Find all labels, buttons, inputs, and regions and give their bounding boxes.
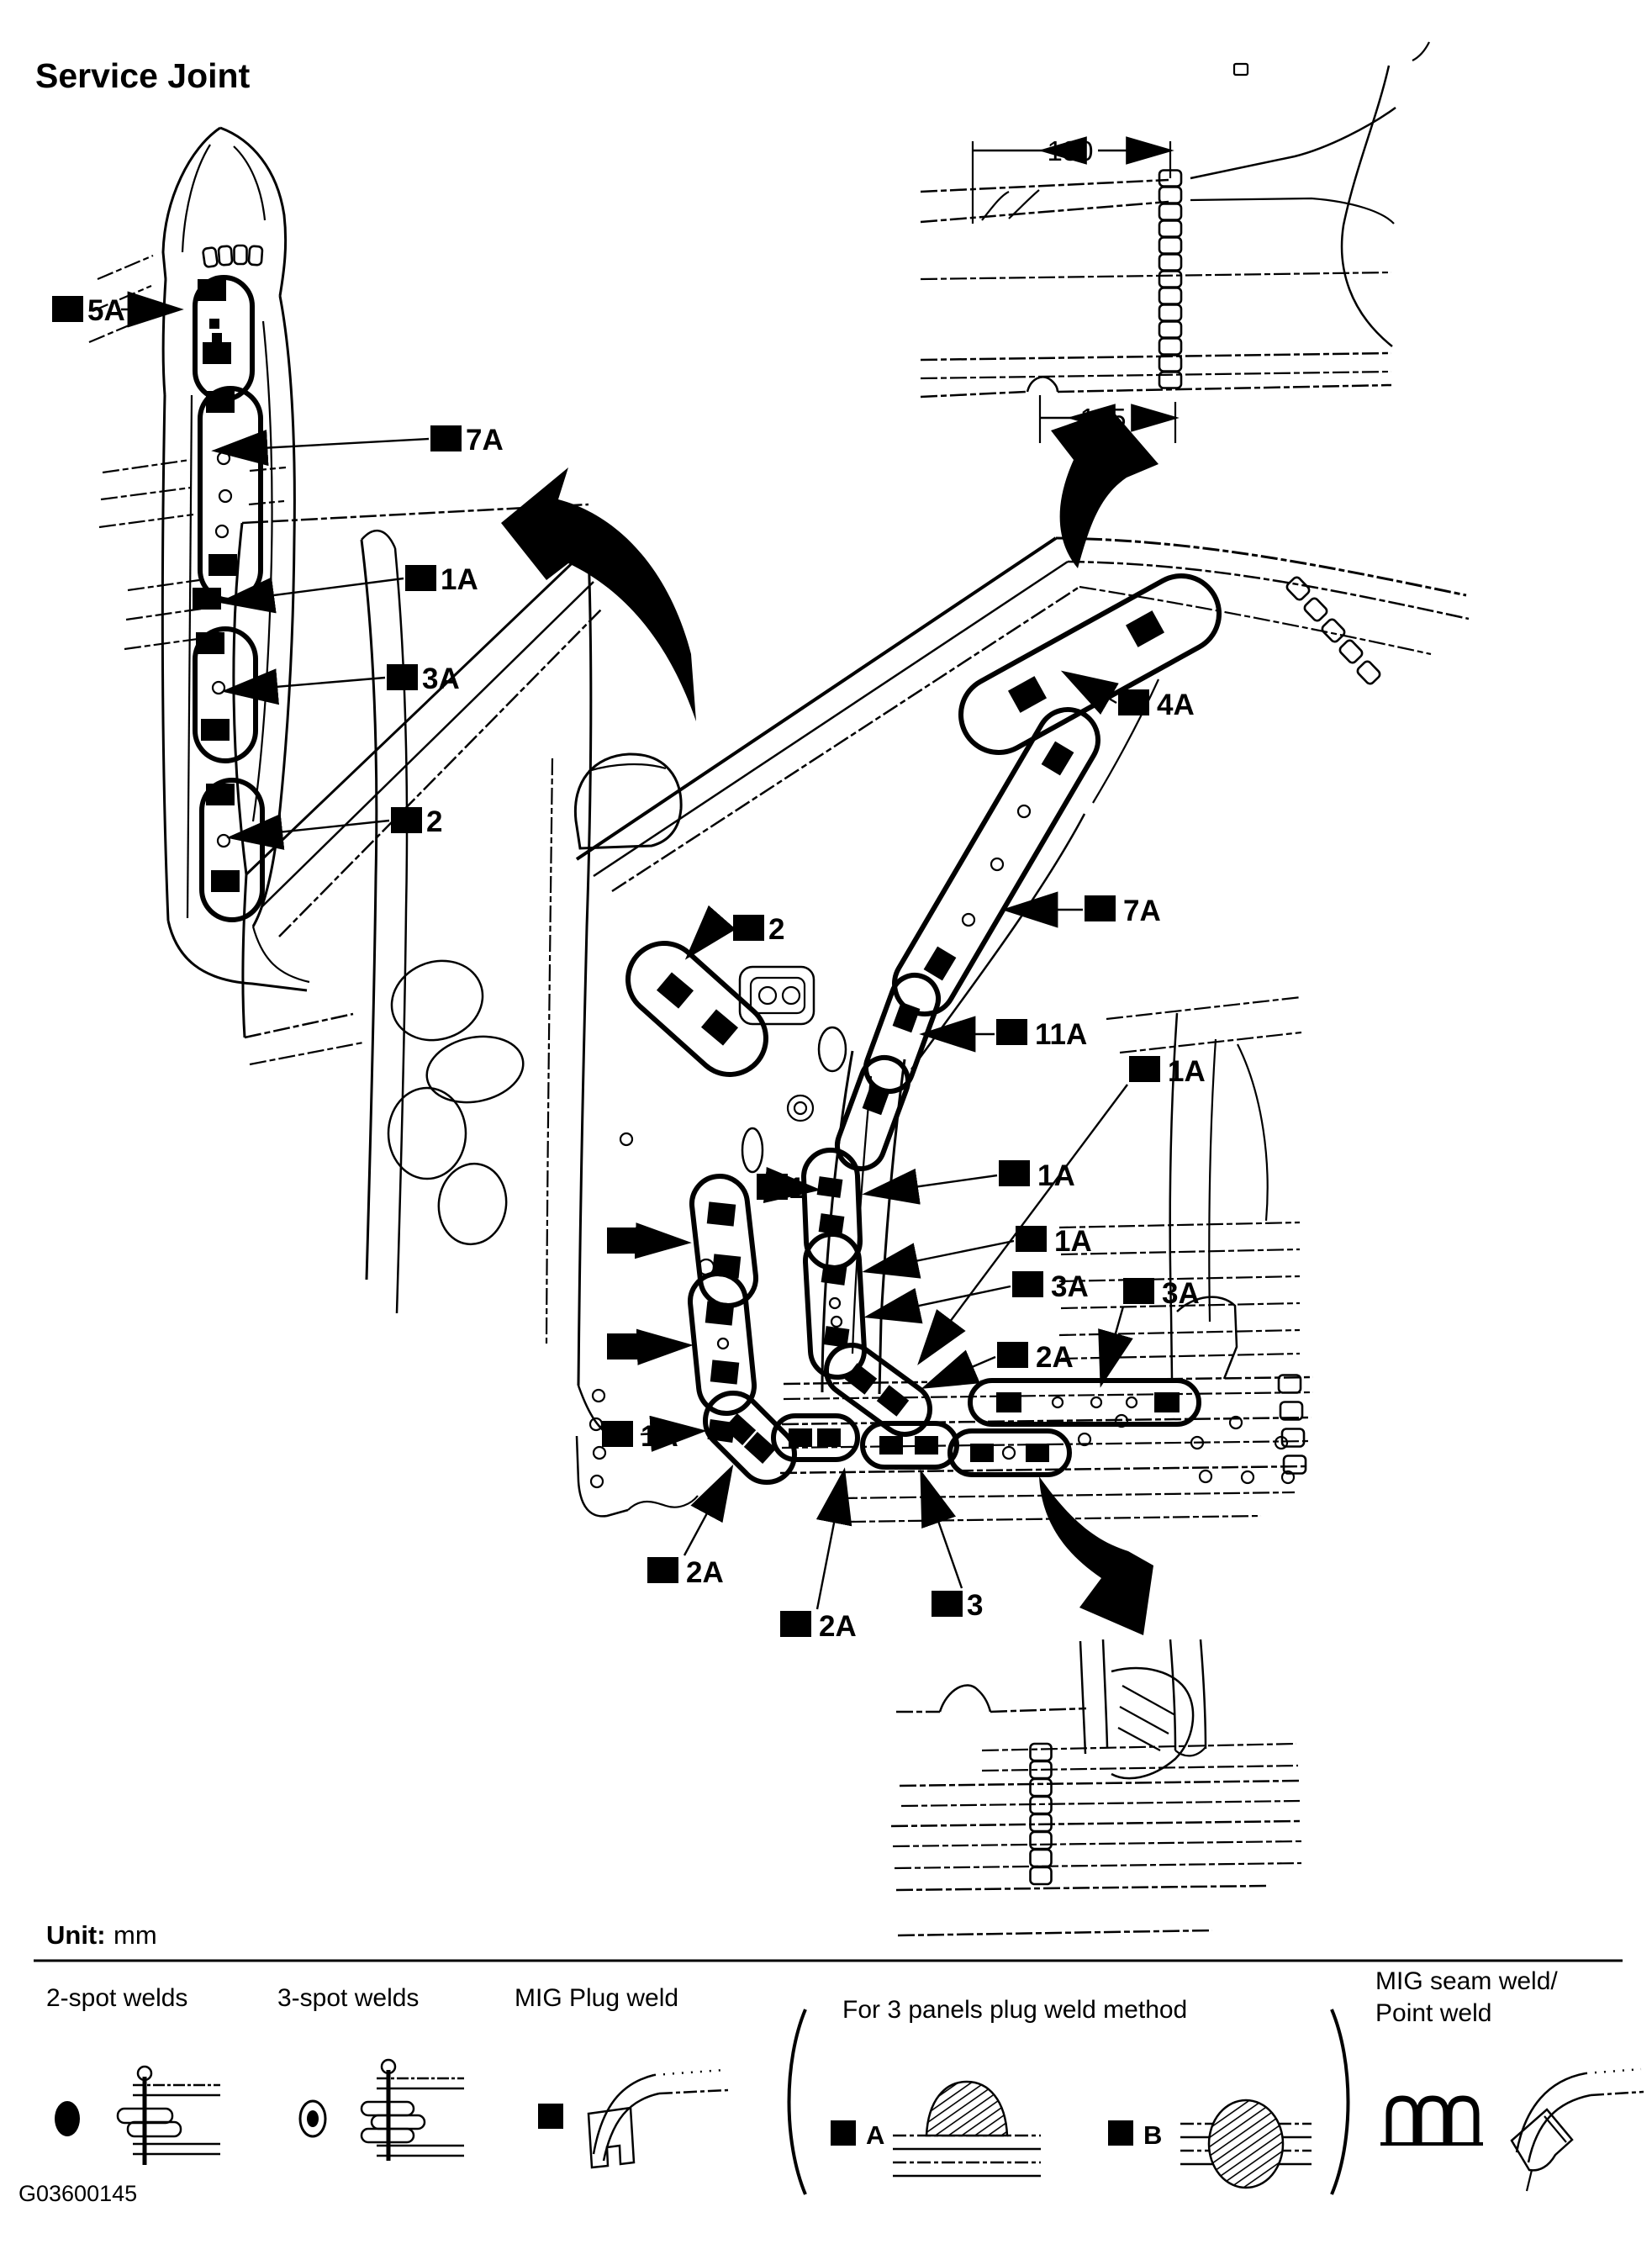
- weld-spot: [712, 1254, 742, 1278]
- callout-m-2-b: 2: [607, 1226, 688, 1259]
- weld-spot: [924, 947, 957, 981]
- callout-ld-5a: 5A: [52, 294, 180, 327]
- callout-label: 5A: [87, 294, 125, 327]
- callout-leader: [920, 1085, 1127, 1362]
- callout-m-3: 3: [921, 1473, 983, 1622]
- callout-m-2-c: 2: [607, 1332, 689, 1365]
- weld-spot: [1154, 1392, 1180, 1412]
- callout-m-1a-a: 1A: [866, 1159, 1075, 1194]
- weld-spot: [707, 1201, 736, 1226]
- callout-square-icon: [1016, 1226, 1047, 1252]
- mig-seam-weld-icon: [1380, 2099, 1483, 2144]
- legend: Unit: mm 2-spot welds 3-spot welds MIG P…: [34, 1920, 1644, 2194]
- weld-group-outline: [816, 1335, 940, 1444]
- callout-m-11a: 11A: [923, 1018, 1087, 1051]
- callout-square-icon: [999, 1160, 1030, 1186]
- weld-spot: [817, 1428, 841, 1447]
- callout-label: 11A: [1035, 1018, 1087, 1051]
- three-panel-method-legend: For 3 panels plug weld method A B: [789, 1996, 1349, 2194]
- callout-ld-3a: 3A: [225, 663, 460, 695]
- callout-label: 1A: [1168, 1055, 1206, 1088]
- callout-square-icon: [387, 664, 418, 690]
- weld-spot: [845, 1363, 877, 1394]
- weld-group-outline: [947, 562, 1232, 766]
- weld-group-outline: [689, 1173, 758, 1308]
- weld-spot: [206, 784, 235, 805]
- callout-leader: [222, 578, 404, 602]
- weld-spot: [789, 1428, 812, 1447]
- legend-migseam-label-2: Point weld: [1375, 1999, 1491, 2027]
- weld-spot: [1008, 676, 1047, 713]
- paren-open: [789, 2009, 806, 2194]
- arrow-to-left-detail-icon: [501, 467, 696, 721]
- callout-label: 1A: [441, 563, 478, 596]
- weld-spot: [701, 1009, 738, 1045]
- weld-spot: [970, 1444, 994, 1462]
- callout-square-icon: [733, 915, 764, 941]
- callout-m-3a-a: 3A: [868, 1270, 1089, 1317]
- weld-spot: [710, 1360, 740, 1384]
- callout-leader: [215, 439, 429, 451]
- callout-square-icon: [780, 1611, 811, 1637]
- legend-migseam-label-1: MIG seam weld/: [1375, 1967, 1558, 1995]
- weld-spot: [206, 391, 235, 413]
- arrow-to-sill-detail-icon: [1039, 1476, 1153, 1635]
- callout-square-icon: [757, 1174, 788, 1200]
- callout-label: 2A: [819, 1610, 857, 1643]
- weld-spot: [821, 1264, 847, 1286]
- unit-value: mm: [113, 1920, 157, 1950]
- callout-label: 3A: [1051, 1270, 1089, 1303]
- body-line-art: [89, 42, 1469, 1935]
- callout-leader: [688, 930, 731, 957]
- weld-spot: [824, 1326, 850, 1348]
- figure-id: G03600145: [18, 2181, 137, 2206]
- callout-leader: [817, 1471, 844, 1609]
- callout-square-icon: [647, 1557, 678, 1583]
- callout-label: 7A: [466, 424, 504, 457]
- weld-spot: [879, 1436, 903, 1455]
- callout-label: 2A: [686, 1556, 724, 1589]
- weld-spot: [893, 1002, 921, 1032]
- callout-leader: [230, 821, 389, 837]
- weld-spot: [1026, 1444, 1049, 1462]
- callout-m-7a: 7A: [1005, 895, 1161, 927]
- callout-leader: [225, 678, 385, 691]
- callout-label: 1A: [1037, 1159, 1075, 1192]
- callout-m-2a-b: 2A: [647, 1468, 731, 1589]
- unit-label: Unit:: [46, 1920, 106, 1950]
- callout-label: 3A: [1162, 1277, 1200, 1310]
- mig-plug-weld-icon: [538, 2070, 728, 2167]
- callout-m-1a-b: 1A: [866, 1225, 1092, 1271]
- weld-spot: [996, 1392, 1021, 1412]
- callout-label: 3A: [422, 663, 460, 695]
- page-title: Service Joint: [35, 56, 251, 95]
- callout-label: 1A: [641, 1420, 678, 1453]
- weld-spot: [1126, 610, 1164, 647]
- callout-m-2a-c: 2A: [780, 1471, 857, 1643]
- weld-spot: [198, 279, 226, 301]
- mig-torch-icon: [1512, 2069, 1644, 2191]
- weld-spot: [1042, 742, 1074, 776]
- weld-spot: [915, 1436, 938, 1455]
- weld-spot: [877, 1385, 909, 1416]
- callout-leader: [866, 1175, 997, 1194]
- callout-label: 3: [967, 1589, 983, 1622]
- callout-m-2-cowl: 2: [688, 913, 784, 957]
- callout-label: 4A: [1157, 689, 1195, 721]
- callout-square-icon: [1012, 1271, 1043, 1297]
- callout-label: 2A: [1036, 1341, 1074, 1374]
- callout-label: 2: [426, 805, 442, 838]
- callout-leader: [868, 1286, 1011, 1317]
- callout-label: 2: [768, 913, 784, 946]
- callout-square-icon: [391, 807, 422, 833]
- callout-leader: [684, 1468, 731, 1555]
- callout-label: 7A: [1123, 895, 1161, 927]
- callout-square-icon: [430, 425, 462, 451]
- callout-square-icon: [602, 1421, 633, 1447]
- weld-spot: [819, 1213, 845, 1235]
- callout-leader: [921, 1473, 962, 1588]
- three-spot-weld-icon: [300, 2060, 464, 2161]
- callout-square-icon: [607, 1333, 638, 1360]
- paren-close: [1332, 2009, 1349, 2194]
- callout-square-icon: [52, 296, 83, 322]
- weld-spot: [211, 870, 240, 892]
- callout-label: 1: [789, 1172, 805, 1205]
- callout-square-icon: [997, 1342, 1028, 1368]
- weld-spot: [193, 588, 221, 610]
- legend-option-a-label: A: [866, 2120, 884, 2150]
- callout-m-1a-far: 1A: [920, 1055, 1206, 1362]
- callout-leader: [1064, 673, 1116, 703]
- two-spot-weld-icon: [55, 2067, 220, 2165]
- callout-square-icon: [405, 565, 436, 591]
- callout-square-icon: [1118, 689, 1149, 715]
- callout-m-3a-far: 3A: [1101, 1277, 1200, 1384]
- weld-spot: [817, 1176, 843, 1198]
- callout-square-icon: [996, 1019, 1027, 1045]
- callout-label: 2: [642, 1332, 658, 1365]
- legend-2spot-label: 2-spot welds: [46, 1984, 187, 2012]
- callout-square-icon: [1129, 1056, 1160, 1082]
- service-joint-page: Service Joint 5A7A1A3A224A7A11A11A1A3A2A…: [0, 0, 1652, 2265]
- callout-square-icon: [1085, 895, 1116, 921]
- weld-group-outline: [613, 928, 780, 1089]
- weld-spot: [657, 972, 694, 1008]
- dimension-180-value: 180: [1047, 135, 1093, 166]
- callout-square-icon: [1123, 1278, 1154, 1304]
- callout-leader: [1101, 1307, 1123, 1384]
- weld-group-outline: [804, 1233, 866, 1379]
- legend-migplug-label: MIG Plug weld: [515, 1984, 678, 2012]
- weld-spot: [212, 333, 222, 343]
- callout-square-icon: [607, 1228, 638, 1254]
- legend-option-b-label: B: [1143, 2120, 1162, 2150]
- callout-square-icon: [932, 1591, 963, 1617]
- dimension-125-value: 125: [1079, 403, 1126, 434]
- weld-group-outline: [950, 1431, 1069, 1475]
- plug-weld-a-icon: [893, 2082, 1041, 2176]
- weld-spot: [196, 632, 224, 654]
- weld-spot: [201, 719, 230, 741]
- legend-3panel-label: For 3 panels plug weld method: [842, 1996, 1187, 2024]
- callout-label: 2: [642, 1226, 658, 1259]
- callout-m-1: 1: [757, 1172, 817, 1205]
- legend-3spot-label: 3-spot welds: [277, 1984, 419, 2012]
- weld-spot: [208, 554, 237, 576]
- callout-m-1a-c: 1A: [602, 1420, 703, 1453]
- plug-weld-b-icon: [1180, 2100, 1312, 2188]
- callout-label: 1A: [1054, 1225, 1092, 1258]
- weld-spot: [203, 342, 231, 364]
- weld-spot: [705, 1301, 735, 1325]
- weld-spot: [209, 319, 219, 329]
- service-joint-figure: Service Joint 5A7A1A3A224A7A11A11A1A3A2A…: [0, 0, 1652, 2265]
